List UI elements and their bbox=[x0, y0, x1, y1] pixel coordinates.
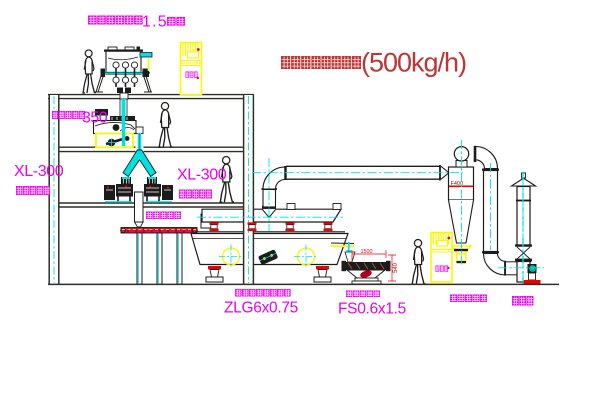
svg-text:XL-300: XL-300 bbox=[177, 167, 227, 184]
svg-text:FS0.6x1.5: FS0.6x1.5 bbox=[338, 301, 406, 318]
svg-text:350: 350 bbox=[82, 110, 108, 127]
svg-text:1.5: 1.5 bbox=[142, 14, 168, 31]
svg-text:1500: 1500 bbox=[361, 249, 373, 255]
svg-text:XL-300: XL-300 bbox=[14, 163, 64, 180]
svg-text:ZLG6x0.75: ZLG6x0.75 bbox=[224, 300, 298, 317]
svg-text:(500kg/h): (500kg/h) bbox=[361, 48, 466, 78]
svg-text:540: 540 bbox=[393, 262, 399, 273]
